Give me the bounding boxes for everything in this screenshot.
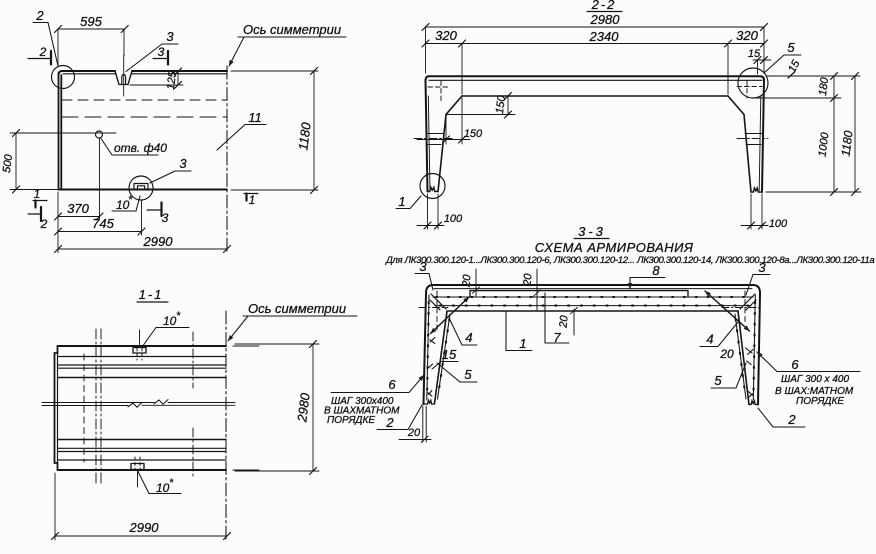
svg-text:150: 150 bbox=[494, 94, 508, 115]
svg-text:отв. ф40: отв. ф40 bbox=[114, 141, 167, 155]
svg-text:4: 4 bbox=[706, 332, 713, 347]
svg-text:1180: 1180 bbox=[295, 121, 313, 151]
svg-text:11: 11 bbox=[248, 110, 262, 125]
svg-text:10: 10 bbox=[156, 481, 170, 495]
svg-text:Ось симметрии: Ось симметрии bbox=[248, 301, 346, 316]
svg-text:500: 500 bbox=[1, 153, 15, 174]
svg-text:2: 2 bbox=[39, 45, 47, 59]
svg-text:15: 15 bbox=[442, 347, 457, 362]
svg-text:Для ЛК300.300.120-1...ЛК300.30: Для ЛК300.300.120-1...ЛК300.300.120-6, Л… bbox=[385, 255, 874, 266]
svg-text:1: 1 bbox=[34, 187, 41, 201]
svg-text:2: 2 bbox=[385, 415, 394, 430]
svg-text:*: * bbox=[169, 477, 174, 489]
svg-text:180: 180 bbox=[817, 76, 831, 97]
svg-text:2340: 2340 bbox=[589, 29, 620, 44]
svg-text:6: 6 bbox=[791, 357, 799, 372]
svg-text:1: 1 bbox=[519, 336, 526, 351]
svg-text:20: 20 bbox=[521, 272, 534, 287]
svg-text:3: 3 bbox=[162, 211, 169, 225]
svg-text:15: 15 bbox=[748, 48, 761, 60]
svg-text:1180: 1180 bbox=[839, 130, 856, 158]
svg-text:320: 320 bbox=[435, 28, 457, 43]
svg-text:150: 150 bbox=[464, 128, 483, 140]
svg-text:3: 3 bbox=[419, 259, 427, 274]
svg-text:3: 3 bbox=[166, 29, 174, 44]
svg-text:3: 3 bbox=[158, 45, 165, 59]
svg-text:ШАГ 300 х 400: ШАГ 300 х 400 bbox=[781, 374, 849, 385]
svg-text:20: 20 bbox=[460, 273, 473, 288]
svg-text:125: 125 bbox=[165, 70, 179, 91]
svg-text:3: 3 bbox=[758, 260, 766, 275]
svg-text:2980: 2980 bbox=[294, 391, 313, 423]
svg-text:*: * bbox=[176, 310, 181, 322]
svg-text:СХЕМА АРМИРОВАНИЯ: СХЕМА АРМИРОВАНИЯ bbox=[535, 240, 694, 255]
svg-text:5: 5 bbox=[787, 40, 795, 55]
svg-text:10: 10 bbox=[163, 314, 177, 328]
svg-text:595: 595 bbox=[80, 14, 102, 29]
svg-text:2990: 2990 bbox=[143, 234, 174, 249]
svg-text:100: 100 bbox=[444, 213, 463, 225]
svg-text:*: * bbox=[128, 194, 133, 206]
svg-text:320: 320 bbox=[736, 28, 758, 43]
svg-text:6: 6 bbox=[388, 377, 396, 392]
svg-text:2: 2 bbox=[787, 412, 796, 427]
svg-text:20: 20 bbox=[407, 427, 421, 439]
svg-text:1: 1 bbox=[249, 193, 256, 207]
svg-text:3-3: 3-3 bbox=[578, 224, 606, 239]
svg-text:5: 5 bbox=[714, 373, 722, 388]
svg-text:1: 1 bbox=[398, 194, 405, 209]
svg-text:5: 5 bbox=[464, 367, 472, 382]
svg-text:8: 8 bbox=[652, 263, 660, 278]
svg-text:20: 20 bbox=[719, 347, 734, 361]
svg-text:3: 3 bbox=[179, 156, 187, 171]
svg-text:Ось симметрии: Ось симметрии bbox=[243, 22, 341, 37]
svg-text:15: 15 bbox=[786, 58, 803, 75]
svg-text:ПОРЯДКЕ: ПОРЯДКЕ bbox=[796, 396, 844, 407]
svg-text:ПОРЯДКЕ: ПОРЯДКЕ bbox=[327, 415, 375, 426]
svg-text:370: 370 bbox=[67, 201, 89, 216]
svg-text:1-1: 1-1 bbox=[139, 287, 164, 302]
svg-text:1000: 1000 bbox=[817, 131, 832, 158]
svg-text:2: 2 bbox=[35, 8, 44, 23]
svg-text:100: 100 bbox=[769, 218, 788, 230]
svg-text:2-2: 2-2 bbox=[591, 0, 617, 12]
svg-text:745: 745 bbox=[92, 216, 114, 231]
svg-text:2980: 2980 bbox=[590, 12, 621, 27]
svg-text:2990: 2990 bbox=[129, 520, 160, 535]
svg-text:4: 4 bbox=[465, 330, 472, 345]
svg-text:20: 20 bbox=[558, 314, 571, 329]
